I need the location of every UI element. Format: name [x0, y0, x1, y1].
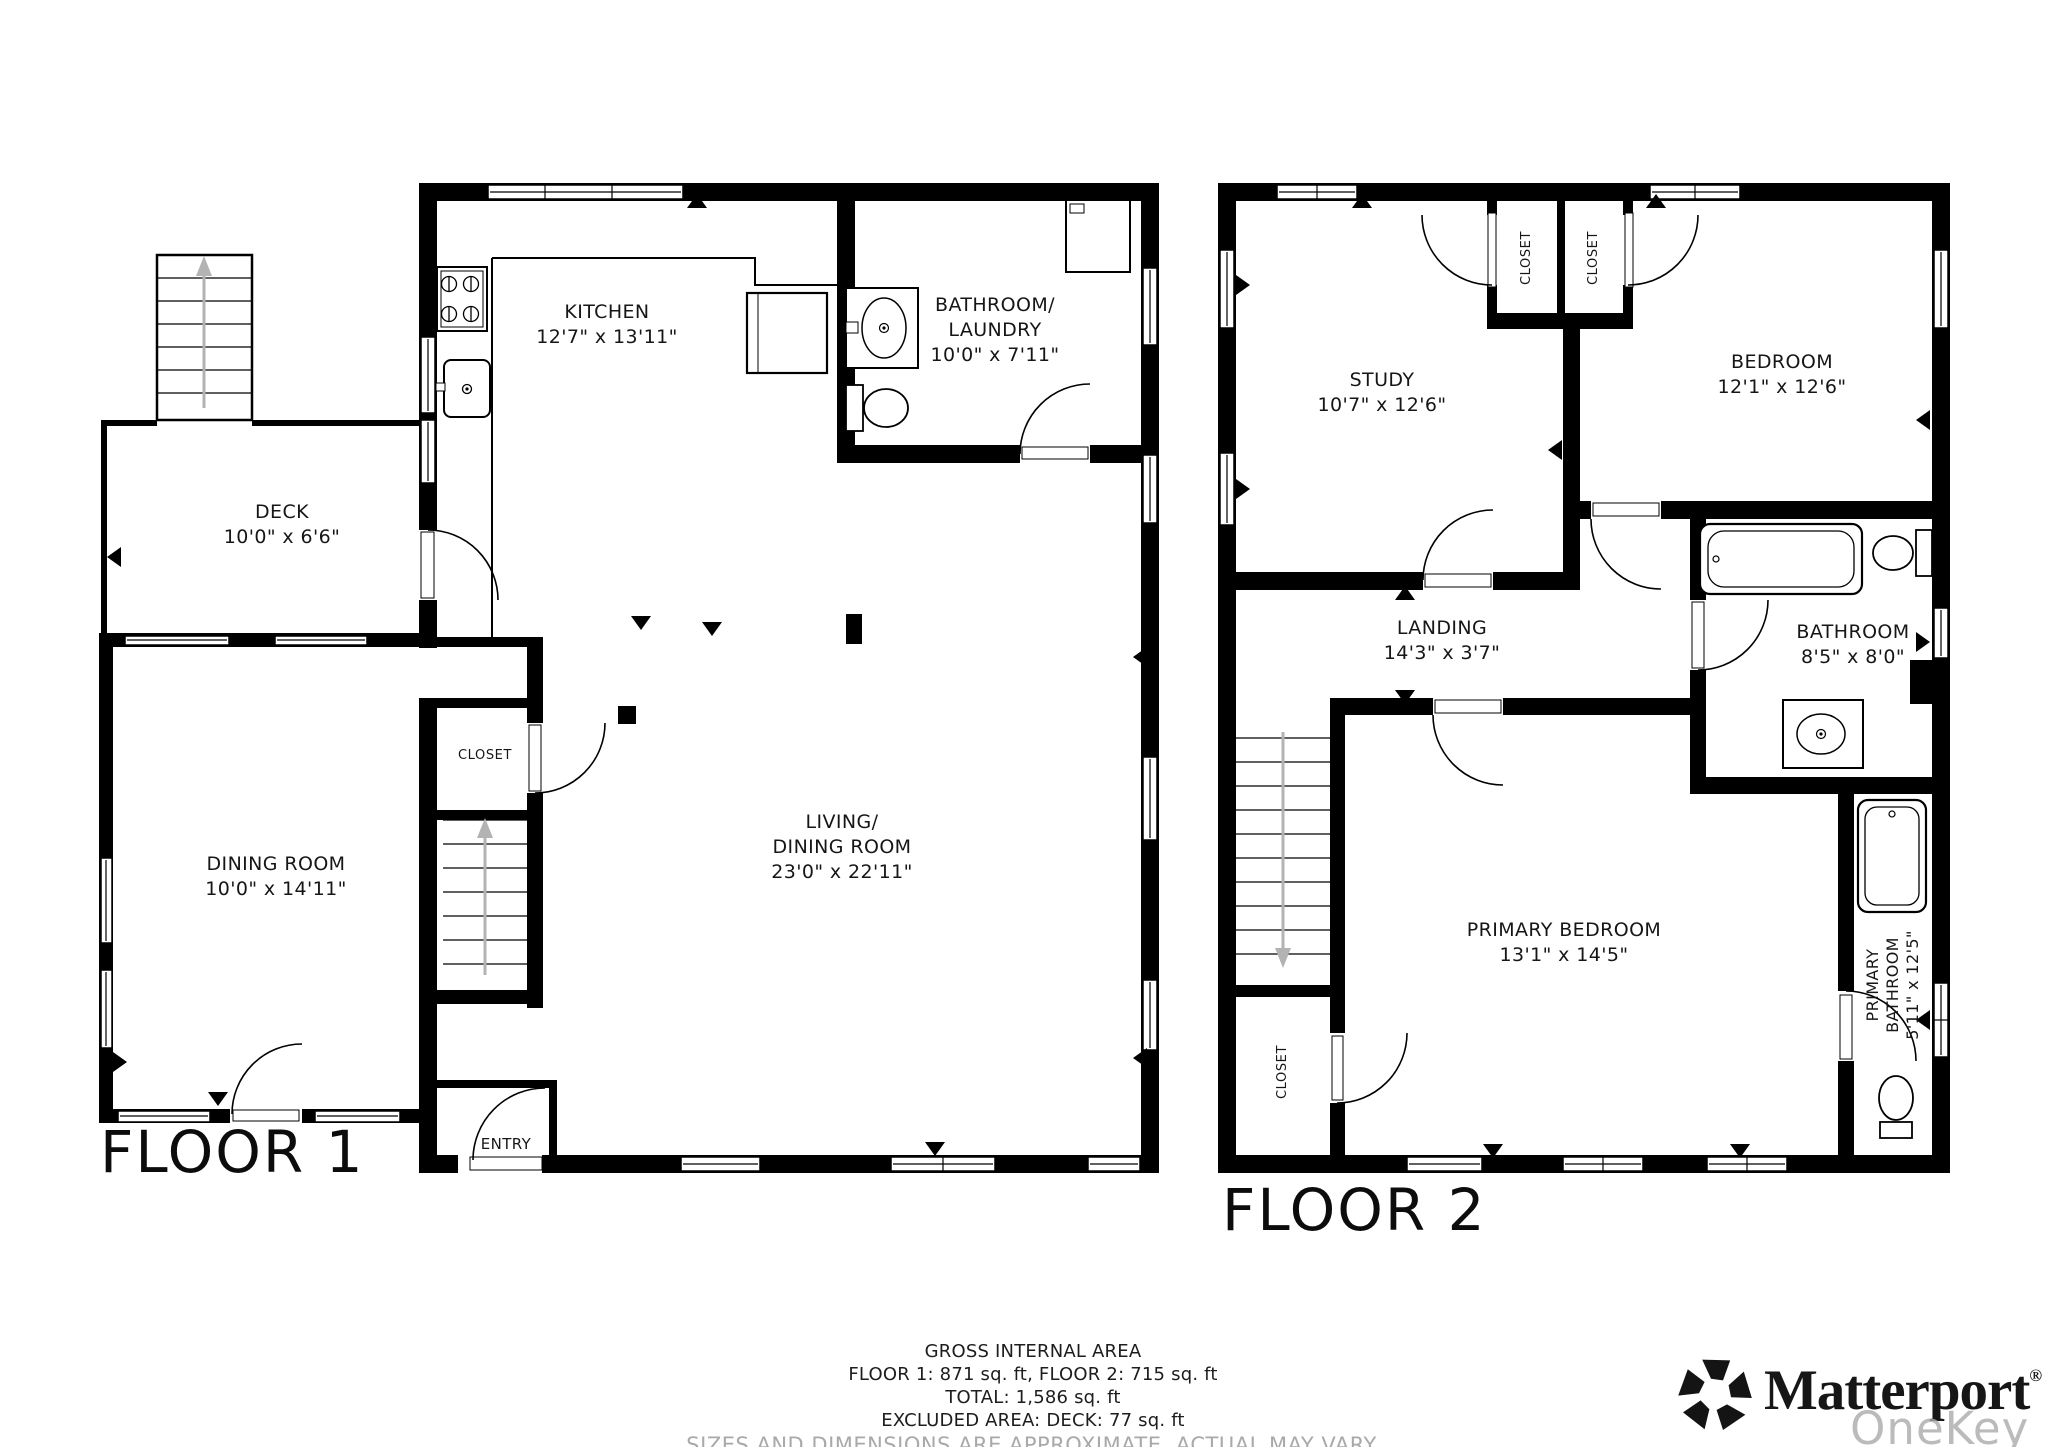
bathroom-laundry-label: BATHROOM/LAUNDRY10'0" x 7'11": [931, 293, 1060, 368]
area-summary: GROSS INTERNAL AREA FLOOR 1: 871 sq. ft,…: [686, 1340, 1379, 1447]
stairs-up-arrow-icon: [477, 818, 493, 838]
toilet-icon: [1879, 1076, 1913, 1138]
excluded-area-line: EXCLUDED AREA: DECK: 77 sq. ft: [686, 1409, 1379, 1432]
washer-icon: [1066, 200, 1130, 272]
closet-label: CLOSET: [1519, 231, 1535, 285]
total-area-line: TOTAL: 1,586 sq. ft: [686, 1386, 1379, 1409]
bathtub-icon: [1700, 524, 1862, 594]
kitchen-label: KITCHEN12'7" x 13'11": [536, 300, 677, 350]
floor-plan-drawing: [0, 0, 2048, 1447]
entry-label: ENTRY: [481, 1132, 532, 1157]
closet-label: CLOSET: [1275, 1045, 1291, 1099]
stairs-down-arrow-icon: [1275, 948, 1291, 968]
stove-icon: [437, 267, 487, 331]
registered-mark: ®: [2029, 1366, 2041, 1385]
matterport-logo-icon: [1675, 1352, 1755, 1436]
gross-internal-area-title: GROSS INTERNAL AREA: [686, 1340, 1379, 1363]
bedroom-label: BEDROOM12'1" x 12'6": [1718, 350, 1847, 400]
door-leaf: [233, 447, 1088, 1170]
floor1-title: FLOOR 1: [100, 1118, 365, 1186]
branding-block: Matterport® OneKey MLS: [1672, 1344, 2048, 1447]
onekey-mls-watermark: OneKey MLS: [1850, 1402, 2048, 1447]
landing-label: LANDING14'3" x 3'7": [1384, 616, 1501, 666]
fridge-icon: [747, 293, 827, 373]
floor-plan-page: KITCHEN12'7" x 13'11" BATHROOM/LAUNDRY10…: [0, 0, 2048, 1447]
kitchen-sink-icon: [436, 360, 490, 417]
floor2-title: FLOOR 2: [1222, 1176, 1487, 1244]
primary-bedroom-label: PRIMARY BEDROOM13'1" x 14'5": [1467, 918, 1661, 968]
closet-label: CLOSET: [458, 748, 512, 764]
floor1-door-openings: [230, 445, 1090, 1173]
floor-areas-line: FLOOR 1: 871 sq. ft, FLOOR 2: 715 sq. ft: [686, 1363, 1379, 1386]
stairs-floor1-icon: [443, 818, 527, 975]
disclaimer-text: SIZES AND DIMENSIONS ARE APPROXIMATE, AC…: [686, 1434, 1379, 1447]
door-arc: [232, 384, 1090, 1160]
bathroom-sink-icon: [1783, 700, 1863, 768]
deck-stairs-icon: [157, 255, 252, 420]
living-dining-label: LIVING/DINING ROOM23'0" x 22'11": [771, 810, 912, 885]
bathroom-label: BATHROOM8'5" x 8'0": [1796, 620, 1909, 670]
stairs-floor2-icon: [1236, 732, 1330, 968]
bathtub-icon: [1858, 800, 1926, 912]
toilet-icon: [846, 385, 908, 431]
study-label: STUDY10'7" x 12'6": [1318, 368, 1447, 418]
closet-label: CLOSET: [1586, 231, 1602, 285]
toilet-icon: [1873, 530, 1932, 576]
deck-label: DECK10'0" x 6'6": [224, 500, 341, 550]
primary-bathroom-label: PRIMARYBATHROOM5'11" x 12'5": [1863, 930, 1923, 1039]
dining-room-label: DINING ROOM10'0" x 14'11": [205, 852, 346, 902]
bathroom-sink-icon: [846, 288, 918, 368]
